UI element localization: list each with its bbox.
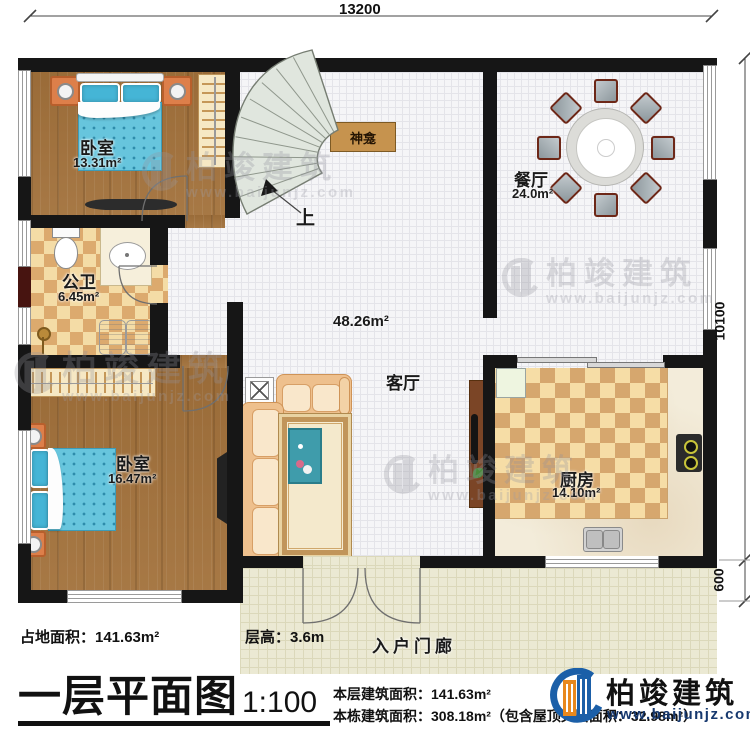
bedroom1-door-gap bbox=[185, 215, 225, 228]
floor-plan-sheet: 卧室 13.31m² 公卫 6.45m² 卧室 16.47m² bbox=[0, 0, 750, 740]
sofa-cushion bbox=[312, 384, 341, 412]
pillow bbox=[121, 83, 161, 104]
wall-kitchen-top-left bbox=[483, 355, 517, 368]
dimension-right: 10100 bbox=[711, 302, 727, 341]
dining-chair bbox=[594, 79, 618, 103]
lamp-icon bbox=[57, 83, 74, 100]
pillow bbox=[30, 491, 50, 530]
stove bbox=[676, 434, 702, 472]
washing-machine bbox=[99, 320, 126, 355]
window bbox=[545, 556, 659, 568]
plant-icon bbox=[473, 468, 483, 478]
sink-basin bbox=[586, 530, 603, 549]
brand-logo-icon bbox=[546, 668, 602, 728]
wall-outer-top bbox=[18, 58, 717, 72]
table-lamp-icon bbox=[250, 381, 269, 400]
porch-name: 入户门廊 bbox=[372, 632, 456, 657]
window bbox=[703, 65, 717, 180]
shaft-block bbox=[18, 267, 31, 307]
sheet-scale: 1:100 bbox=[242, 686, 317, 720]
burner-icon bbox=[684, 456, 698, 470]
porch-floor bbox=[240, 568, 717, 674]
wall-kitchen-left bbox=[483, 368, 495, 556]
burner-icon bbox=[684, 440, 698, 454]
sliding-door bbox=[587, 362, 665, 368]
sheet-title: 一层平面图 bbox=[18, 662, 238, 724]
dining-area: 24.0m² bbox=[512, 186, 553, 201]
dimension-right-lower: 600 bbox=[711, 568, 727, 591]
kitchen-sink bbox=[583, 527, 623, 552]
toilet bbox=[51, 227, 79, 269]
stair-up-label: 上 bbox=[296, 203, 315, 230]
bedroom2-area: 16.47m² bbox=[108, 471, 156, 486]
wall-bathroom-right-lower bbox=[150, 303, 168, 355]
dimension-top: 13200 bbox=[339, 1, 381, 18]
window bbox=[67, 590, 182, 603]
dining-chair bbox=[651, 136, 675, 160]
brand-website: www.baijunjz.com bbox=[607, 706, 750, 723]
sofa-end-table bbox=[245, 377, 274, 404]
wall-bathroom-right-upper bbox=[150, 228, 168, 265]
pillow bbox=[80, 83, 120, 104]
coffee-table bbox=[288, 428, 322, 484]
nightstand bbox=[162, 76, 192, 106]
dining-chair bbox=[594, 193, 618, 217]
wall-bathroom-bottom bbox=[18, 355, 180, 368]
wall-bedroom1-bottom bbox=[18, 215, 185, 228]
sofa-cushion bbox=[282, 384, 311, 412]
this-floor-area: 本层建筑面积：141.63m² bbox=[333, 684, 491, 704]
title-underline bbox=[18, 721, 330, 726]
window bbox=[18, 430, 31, 544]
sink-basin bbox=[603, 530, 620, 549]
wall-dining-left bbox=[483, 58, 497, 318]
sink-drain bbox=[125, 253, 129, 257]
wall-corridor-jut bbox=[227, 302, 243, 357]
bathroom-door-floor bbox=[150, 265, 168, 303]
window bbox=[18, 307, 31, 345]
brand-logo: 柏竣建筑 www.baijunjz.com bbox=[546, 668, 746, 732]
flowers-icon bbox=[303, 465, 312, 474]
wall-bedroom2-right bbox=[227, 355, 243, 603]
shrine-cabinet: 神龛 bbox=[330, 122, 396, 152]
lamp-icon bbox=[169, 83, 186, 100]
sofa-armrest bbox=[339, 377, 350, 415]
living-area: 48.26m² bbox=[333, 313, 389, 330]
bedroom1-area: 13.31m² bbox=[73, 155, 121, 170]
tv-wall-mounted bbox=[217, 452, 227, 524]
bedroom2-door-gap bbox=[180, 355, 227, 368]
sliding-door bbox=[517, 357, 597, 363]
bathroom-counter bbox=[100, 227, 152, 286]
wardrobe bbox=[21, 368, 156, 397]
window bbox=[18, 220, 31, 267]
living-name: 客厅 bbox=[386, 369, 420, 394]
shrine-name: 神龛 bbox=[350, 128, 376, 147]
sofa-top bbox=[276, 374, 352, 417]
floor-height-label: 层高：3.6m bbox=[245, 626, 324, 647]
fridge bbox=[496, 368, 526, 398]
table-center bbox=[597, 139, 615, 157]
tv-dresser bbox=[85, 199, 177, 210]
entrance-opening bbox=[303, 556, 420, 568]
dining-chair bbox=[537, 136, 561, 160]
wall-kitchen-top-right bbox=[663, 355, 717, 368]
site-area-label: 占地面积：141.63m² bbox=[20, 626, 159, 647]
headboard bbox=[76, 73, 164, 82]
wardrobe-rod bbox=[214, 77, 216, 165]
flowers-icon bbox=[298, 444, 303, 449]
window bbox=[18, 70, 31, 177]
wardrobe-rod bbox=[24, 383, 153, 385]
kitchen-area: 14.10m² bbox=[552, 485, 600, 500]
sofa-cushion bbox=[252, 409, 280, 457]
wall-bedroom1-right bbox=[225, 58, 240, 218]
bathroom-area: 6.45m² bbox=[58, 289, 99, 304]
pillow bbox=[30, 449, 50, 488]
drain-stem bbox=[42, 337, 44, 354]
sofa-cushion bbox=[252, 458, 280, 506]
tv-living bbox=[471, 414, 478, 464]
floor-drain-icon bbox=[37, 327, 51, 341]
sofa-cushion bbox=[252, 507, 280, 555]
dining-table-round bbox=[566, 108, 644, 186]
toilet-bowl bbox=[54, 237, 78, 269]
washing-machine bbox=[126, 320, 153, 355]
bed-double bbox=[20, 446, 116, 531]
